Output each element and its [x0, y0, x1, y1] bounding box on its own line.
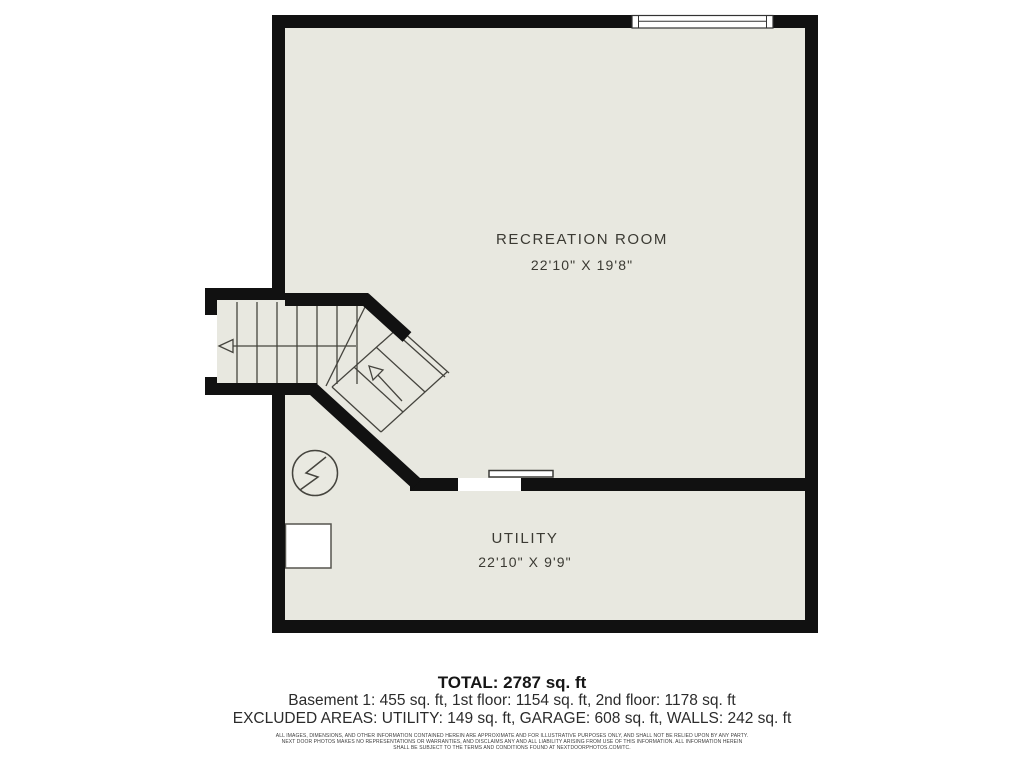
electrical-panel-icon [293, 451, 338, 496]
water-heater-box [286, 524, 332, 568]
excluded-areas-text: EXCLUDED AREAS: UTILITY: 149 sq. ft, GAR… [0, 710, 1024, 728]
floor-plan-drawing: RECREATION ROOM 22'10" X 19'8" UTILITY 2… [0, 0, 1024, 768]
recreation-room-label: RECREATION ROOM [496, 231, 668, 248]
floor-areas-text: Basement 1: 455 sq. ft, 1st floor: 1154 … [0, 692, 1024, 710]
floor-plan-page: RECREATION ROOM 22'10" X 19'8" UTILITY 2… [0, 0, 1024, 768]
recreation-room-dimensions: 22'10" X 19'8" [531, 257, 633, 273]
area-summary: TOTAL: 2787 sq. ft Basement 1: 455 sq. f… [0, 673, 1024, 751]
disclaimer-line-3: SHALL BE SUBJECT TO THE TERMS AND CONDIT… [0, 745, 1024, 751]
utility-room-dimensions: 22'10" X 9'9" [478, 554, 571, 570]
disclaimer-text: ALL IMAGES, DIMENSIONS, AND OTHER INFORM… [0, 733, 1024, 751]
utility-room-label: UTILITY [491, 530, 558, 547]
total-area-text: TOTAL: 2787 sq. ft [0, 673, 1024, 692]
window [632, 16, 773, 29]
